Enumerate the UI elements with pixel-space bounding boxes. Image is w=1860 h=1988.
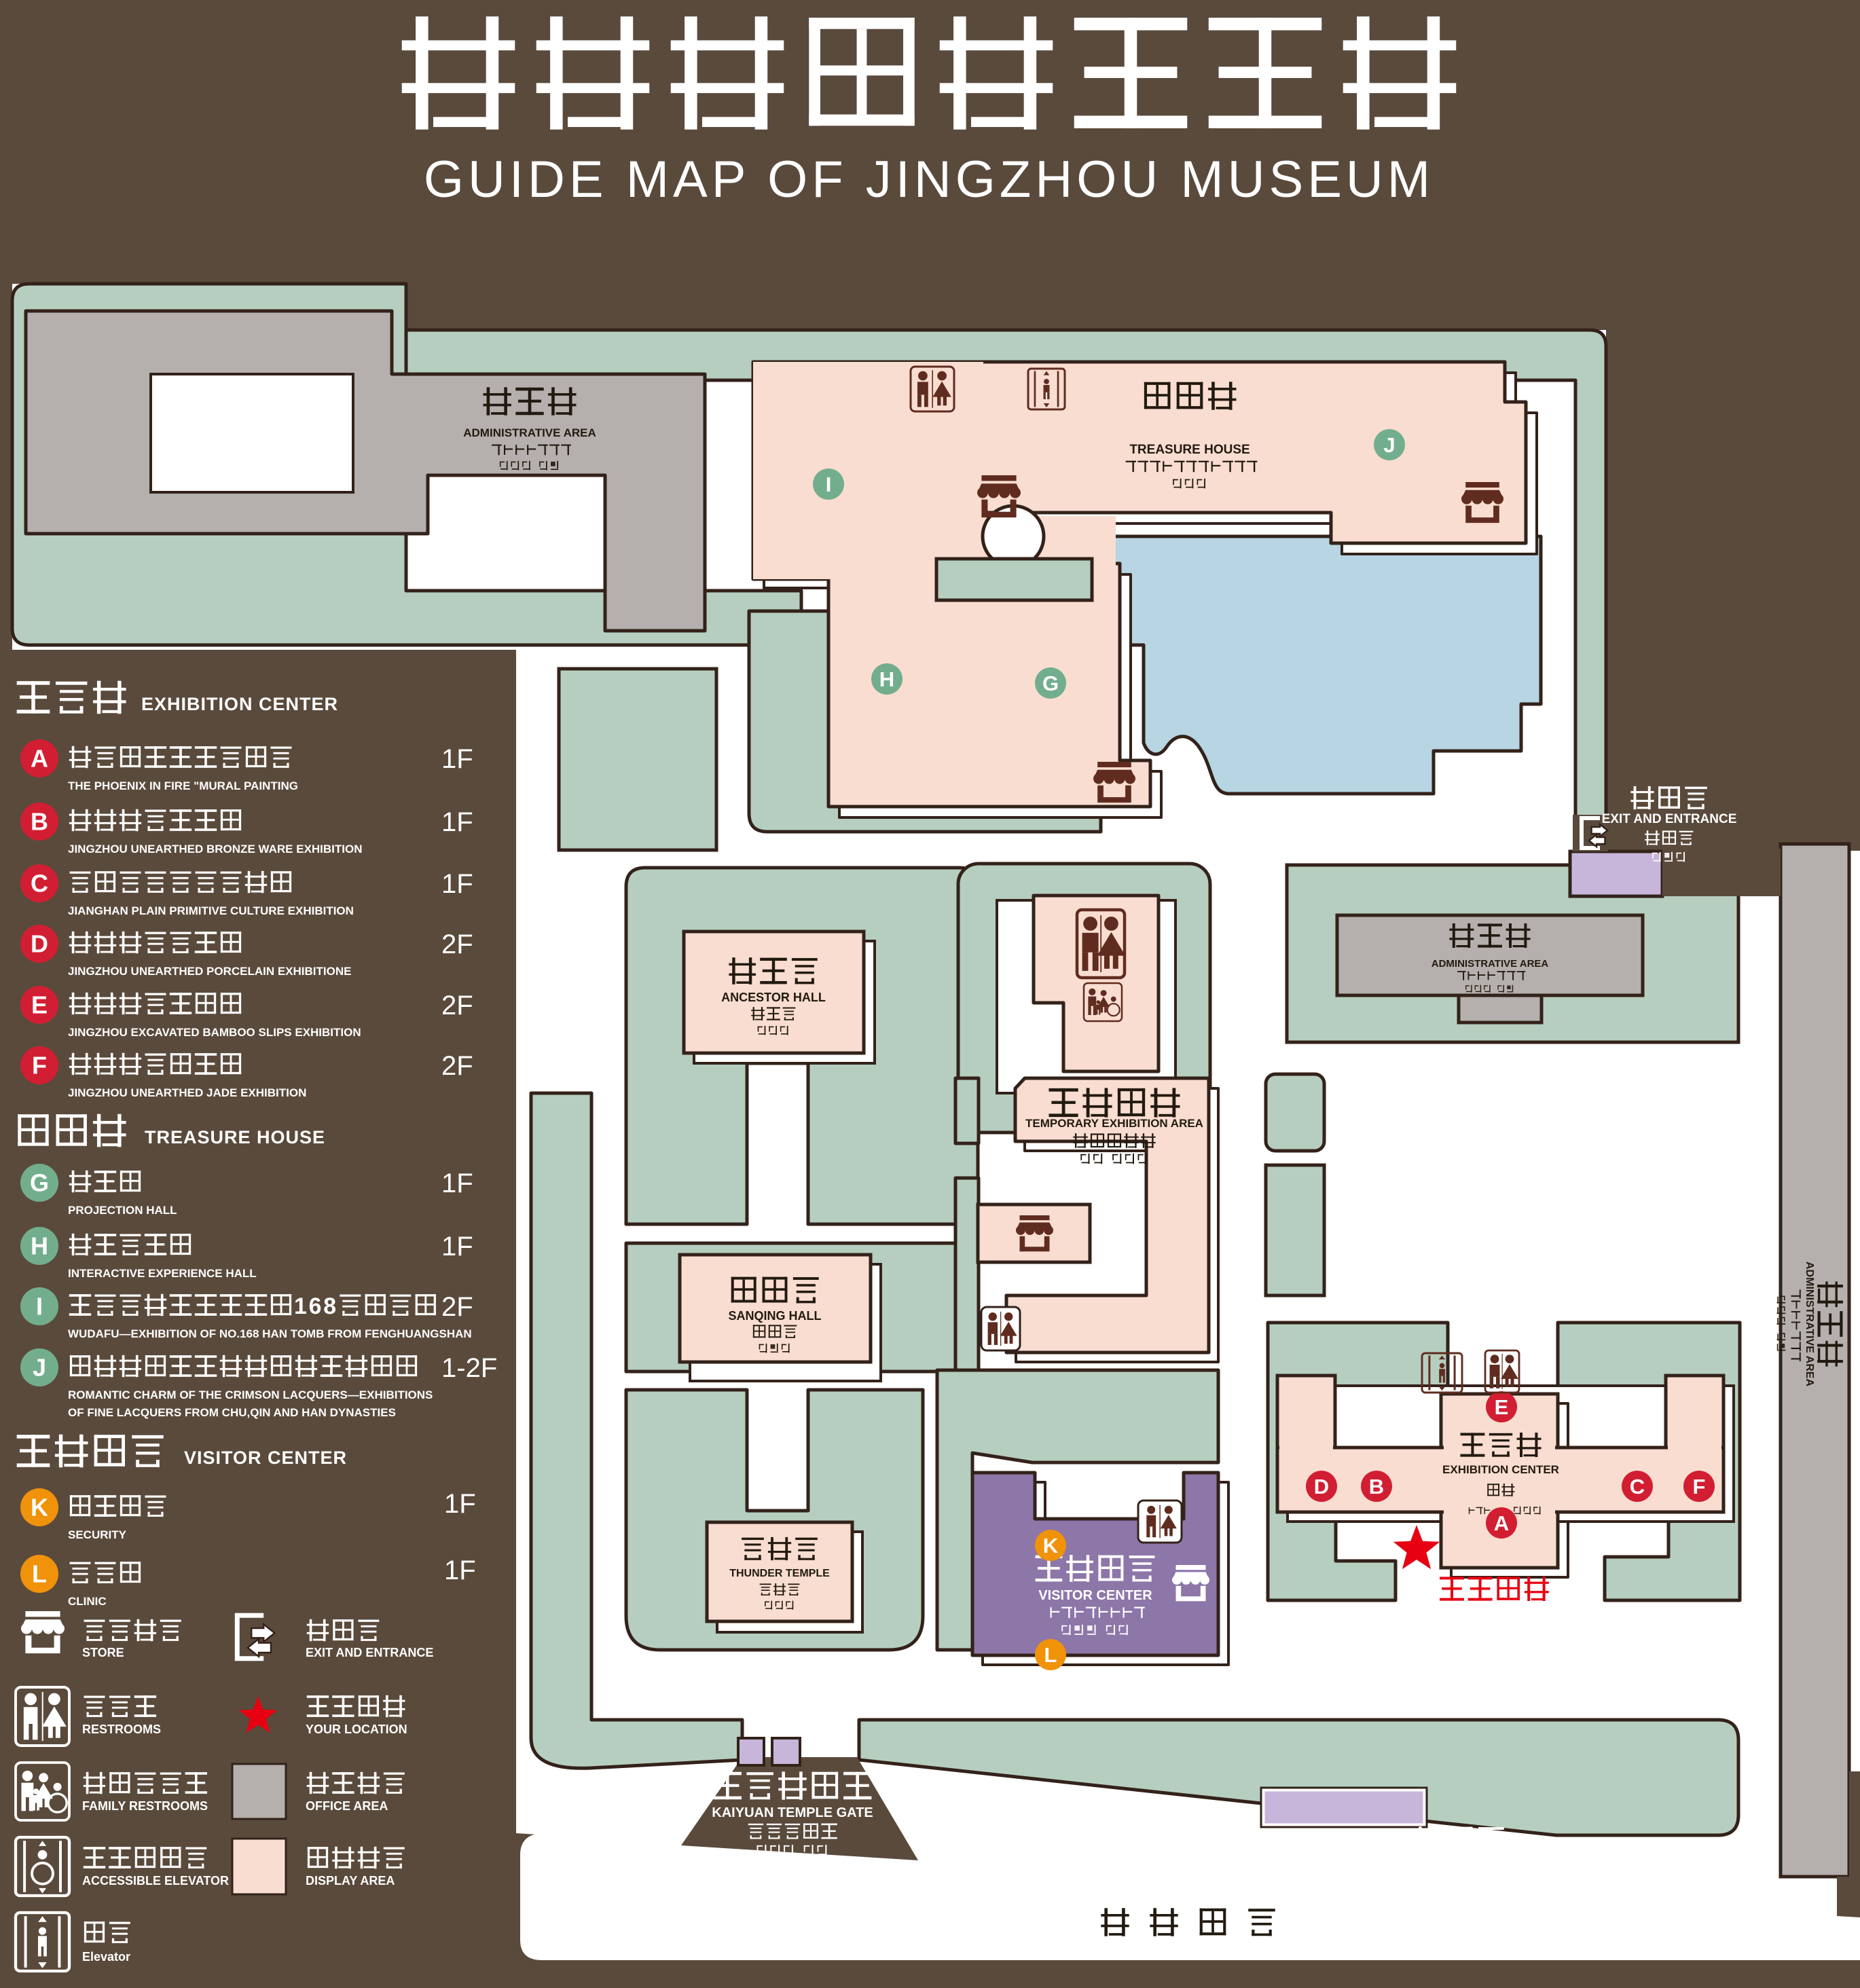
svg-text:THUNDER TEMPLE: THUNDER TEMPLE [729, 1568, 830, 1579]
svg-text:H: H [879, 667, 894, 691]
svg-text:K: K [1043, 1534, 1059, 1558]
svg-text:D: D [31, 930, 48, 958]
svg-text:1F: 1F [441, 807, 473, 837]
svg-text:K: K [31, 1494, 48, 1522]
svg-text:I: I [36, 1293, 43, 1321]
svg-text:TREASURE HOUSE: TREASURE HOUSE [145, 1127, 325, 1147]
svg-text:INTERACTIVE EXPERIENCE HALL: INTERACTIVE EXPERIENCE HALL [68, 1267, 257, 1280]
svg-text:JINGZHOU UNEARTHED JADE EXHIBI: JINGZHOU UNEARTHED JADE EXHIBITION [68, 1086, 306, 1099]
svg-text:I: I [826, 473, 832, 496]
svg-text:EXIT AND ENTRANCE: EXIT AND ENTRANCE [1602, 812, 1737, 826]
svg-text:1F: 1F [441, 869, 473, 899]
svg-text:1: 1 [294, 1293, 307, 1319]
svg-text:F: F [1693, 1475, 1706, 1498]
svg-text:H: H [31, 1232, 48, 1260]
svg-text:YOUR LOCATION: YOUR LOCATION [306, 1723, 407, 1736]
svg-text:SECURITY: SECURITY [68, 1528, 127, 1541]
svg-text:C: C [1630, 1475, 1645, 1498]
svg-text:JINGZHOU UNEARTHED PORCELAIN E: JINGZHOU UNEARTHED PORCELAIN EXHIBITIONE [68, 965, 351, 978]
svg-text:ADMINISTRATIVE AREA: ADMINISTRATIVE AREA [1432, 958, 1549, 970]
svg-text:RESTROOMS: RESTROOMS [82, 1723, 161, 1736]
svg-text:G: G [30, 1169, 49, 1197]
svg-text:2F: 2F [441, 1292, 473, 1322]
svg-text:JIANGHAN PLAIN PRIMITIVE CULTU: JIANGHAN PLAIN PRIMITIVE CULTURE EXHIBIT… [68, 904, 354, 917]
svg-text:C: C [31, 870, 48, 898]
svg-text:JINGZHOU EXCAVATED BAMBOO SLIP: JINGZHOU EXCAVATED BAMBOO SLIPS EXHIBITI… [68, 1026, 361, 1039]
svg-text:GUIDE MAP OF JINGZHOU MUSEUM: GUIDE MAP OF JINGZHOU MUSEUM [424, 151, 1434, 208]
svg-text:KAIYUAN TEMPLE GATE: KAIYUAN TEMPLE GATE [712, 1805, 873, 1820]
svg-text:1-2F: 1-2F [441, 1353, 497, 1383]
svg-text:ROMANTIC CHARM OF THE CRIMSON: ROMANTIC CHARM OF THE CRIMSON LACQUERS—E… [68, 1388, 433, 1401]
svg-text:EXIT AND ENTRANCE: EXIT AND ENTRANCE [1389, 1859, 1531, 1874]
svg-text:B: B [1369, 1475, 1384, 1498]
svg-text:L: L [32, 1560, 47, 1588]
svg-text:2F: 2F [441, 991, 473, 1020]
svg-text:ADMINISTRATIVE AREA: ADMINISTRATIVE AREA [463, 426, 596, 439]
svg-text:2F: 2F [441, 929, 473, 959]
svg-text:1F: 1F [441, 744, 473, 774]
svg-text:1F: 1F [441, 1168, 473, 1198]
svg-text:A: A [1494, 1511, 1509, 1535]
svg-text:CLINIC: CLINIC [68, 1595, 107, 1608]
svg-text:STORE: STORE [82, 1646, 124, 1659]
svg-text:VISITOR CENTER: VISITOR CENTER [184, 1448, 347, 1468]
svg-text:L: L [1044, 1643, 1057, 1667]
svg-text:PROJECTION HALL: PROJECTION HALL [68, 1204, 177, 1217]
svg-text:ADMINISTRATIVE AREA: ADMINISTRATIVE AREA [1804, 1262, 1815, 1386]
svg-text:8: 8 [323, 1293, 336, 1319]
svg-text:EXIT AND ENTRANCE: EXIT AND ENTRANCE [306, 1646, 433, 1659]
svg-text:WUDAFU—EXHIBITION OF NO.168 HA: WUDAFU—EXHIBITION OF NO.168 HAN TOMB FRO… [68, 1327, 472, 1340]
svg-text:6: 6 [309, 1293, 322, 1319]
svg-text:EXHIBITION CENTER: EXHIBITION CENTER [141, 694, 338, 714]
svg-text:TEMPORARY EXHIBITION AREA: TEMPORARY EXHIBITION AREA [1025, 1117, 1203, 1130]
svg-text:1F: 1F [444, 1556, 476, 1585]
svg-text:ACCESSIBLE ELEVATOR: ACCESSIBLE ELEVATOR [82, 1874, 229, 1888]
svg-text:JINGZHOU UNEARTHED BRONZE WARE: JINGZHOU UNEARTHED BRONZE WARE EXHIBITIO… [68, 843, 363, 855]
svg-text:D: D [1314, 1475, 1329, 1498]
svg-text:2F: 2F [441, 1051, 473, 1081]
svg-text:1F: 1F [444, 1489, 476, 1519]
svg-text:E: E [1495, 1395, 1509, 1419]
svg-text:FAMILY RESTROOMS: FAMILY RESTROOMS [82, 1799, 208, 1813]
svg-text:TREASURE HOUSE: TREASURE HOUSE [1129, 443, 1250, 457]
svg-text:SANQING HALL: SANQING HALL [729, 1309, 822, 1323]
svg-text:VISITOR CENTER: VISITOR CENTER [1038, 1588, 1152, 1603]
svg-text:THE PHOENIX IN FIRE "MURAL PAI: THE PHOENIX IN FIRE "MURAL PAINTING [68, 779, 298, 792]
svg-text:A: A [31, 745, 48, 773]
svg-text:G: G [1042, 671, 1059, 695]
svg-text:EXHIBITION CENTER: EXHIBITION CENTER [1442, 1463, 1559, 1476]
svg-text:E: E [31, 991, 48, 1019]
svg-text:DISPLAY AREA: DISPLAY AREA [306, 1874, 395, 1888]
svg-text:J: J [1383, 433, 1395, 457]
svg-text:OFFICE AREA: OFFICE AREA [306, 1799, 388, 1813]
svg-text:Elevator: Elevator [82, 1950, 130, 1964]
svg-text:OF FINE LACQUERS FROM CHU,QIN: OF FINE LACQUERS FROM CHU,QIN AND HAN DY… [68, 1406, 396, 1419]
svg-text:F: F [32, 1052, 47, 1080]
svg-text:ANCESTOR HALL: ANCESTOR HALL [721, 991, 826, 1004]
svg-text:J: J [33, 1354, 46, 1382]
svg-text:B: B [31, 808, 48, 836]
svg-text:1F: 1F [441, 1232, 473, 1262]
